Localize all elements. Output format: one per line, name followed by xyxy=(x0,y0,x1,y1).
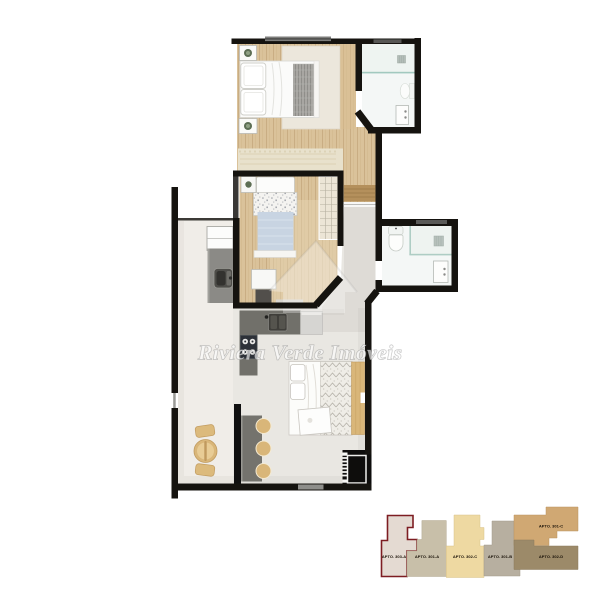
svg-text:APTO. 302-C: APTO. 302-C xyxy=(453,554,477,559)
svg-text:APTO. 301-C: APTO. 301-C xyxy=(539,524,563,529)
svg-text:Riviera Verde Imóveis: Riviera Verde Imóveis xyxy=(197,341,402,365)
svg-text:APTO. 302-D: APTO. 302-D xyxy=(539,554,563,559)
svg-text:APTO. 303-A: APTO. 303-A xyxy=(382,554,406,559)
svg-text:APTO. 301-A: APTO. 301-A xyxy=(415,554,439,559)
svg-text:APTO. 301-B: APTO. 301-B xyxy=(488,554,512,559)
